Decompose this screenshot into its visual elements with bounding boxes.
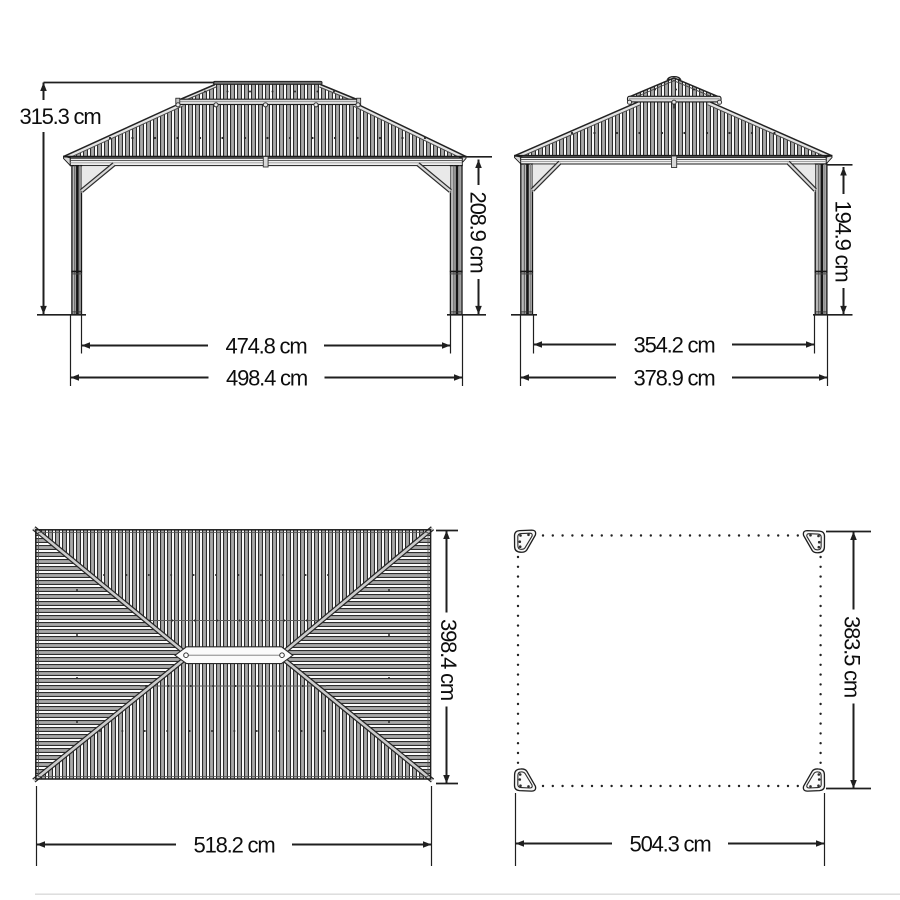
svg-text:354.2 cm: 354.2 cm	[634, 332, 715, 357]
svg-text:208.9 cm: 208.9 cm	[466, 192, 491, 273]
svg-text:378.9 cm: 378.9 cm	[634, 365, 715, 390]
svg-text:194.9 cm: 194.9 cm	[831, 201, 856, 282]
svg-text:498.4 cm: 498.4 cm	[226, 365, 307, 390]
svg-text:518.2 cm: 518.2 cm	[194, 832, 275, 857]
svg-text:398.4 cm: 398.4 cm	[436, 619, 461, 700]
svg-text:383.5 cm: 383.5 cm	[840, 616, 865, 697]
svg-text:474.8 cm: 474.8 cm	[226, 333, 307, 358]
svg-text:504.3 cm: 504.3 cm	[630, 831, 711, 856]
svg-text:315.3 cm: 315.3 cm	[20, 104, 101, 129]
